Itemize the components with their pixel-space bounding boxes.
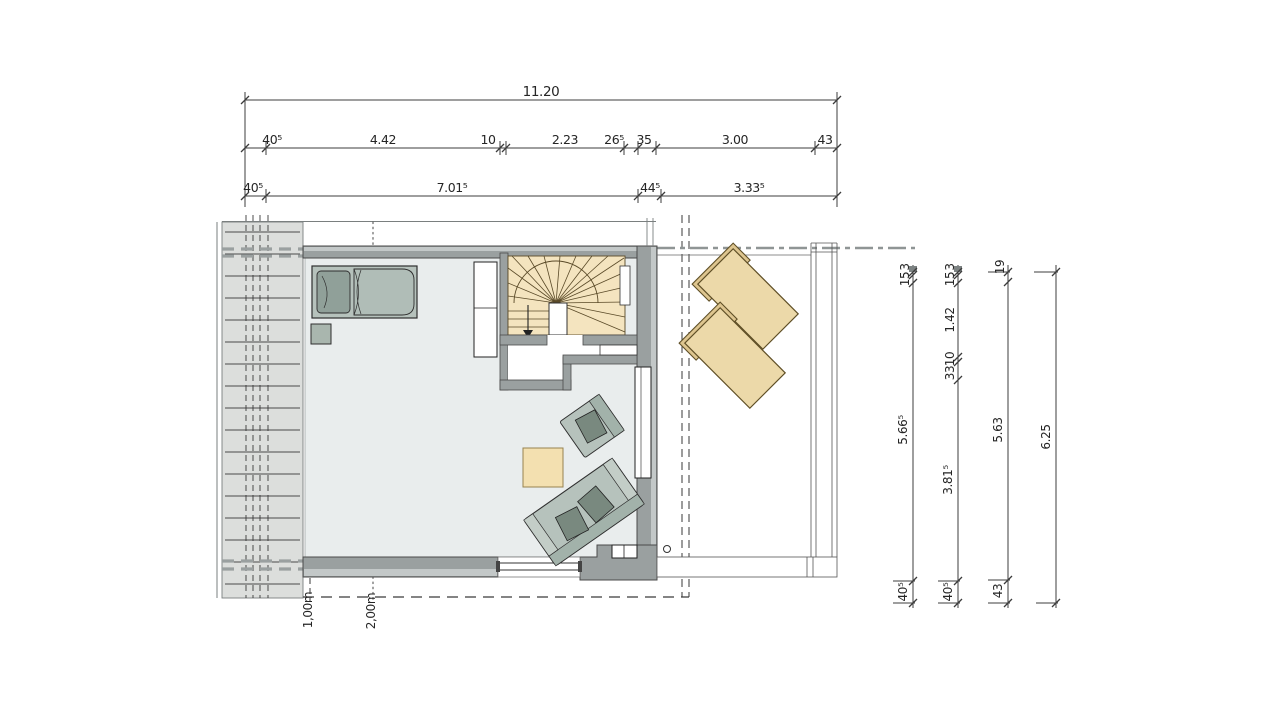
dim-label: 43 bbox=[817, 132, 832, 147]
dim-label: 40⁵ bbox=[941, 557, 955, 627]
floor-plan-canvas: 11.20 40⁵ 4.42 10 2.23 26⁵ 35 3.00 43 40… bbox=[0, 0, 1280, 720]
wall-niche-box bbox=[612, 545, 637, 558]
dim-label: 2.23 bbox=[552, 132, 578, 147]
dim-label: 6.25 bbox=[1039, 402, 1053, 472]
dim-label: 3.00 bbox=[722, 132, 748, 147]
dim-label: 7.01⁵ bbox=[437, 180, 468, 195]
door-handle-circle bbox=[664, 546, 671, 553]
sliding-door bbox=[496, 557, 582, 577]
dim-label: 3.33⁵ bbox=[734, 180, 765, 195]
wardrobe bbox=[474, 262, 497, 357]
roof-strip bbox=[217, 215, 303, 598]
patio-door bbox=[635, 367, 651, 478]
height-mark-label: 1,00m bbox=[301, 575, 315, 645]
dim-label: 4.42 bbox=[370, 132, 396, 147]
dim-label: 44⁵ bbox=[640, 180, 660, 195]
dim-label-total: 11.20 bbox=[523, 84, 560, 100]
dim-label: 40⁵ bbox=[243, 180, 263, 195]
bed bbox=[312, 266, 417, 318]
dim-label: 15 bbox=[898, 244, 912, 314]
dim-label: 3.81⁵ bbox=[941, 445, 955, 515]
plan-linework bbox=[0, 0, 1280, 720]
dim-label: 33 bbox=[943, 338, 957, 408]
nightstand bbox=[311, 324, 331, 344]
dim-label: 35 bbox=[636, 132, 651, 147]
dim-label: 5.63 bbox=[991, 395, 1005, 465]
dim-label: 40⁵ bbox=[896, 557, 910, 627]
dim-label: 5.66⁵ bbox=[896, 395, 910, 465]
dim-label: 10 bbox=[480, 132, 495, 147]
dim-label: 19 bbox=[993, 232, 1007, 302]
dimension-lines-right bbox=[893, 265, 1060, 608]
dim-label: 26⁵ bbox=[604, 132, 624, 147]
dim-label: 40⁵ bbox=[262, 132, 282, 147]
coffee-table bbox=[523, 448, 563, 487]
dim-label: 43 bbox=[991, 556, 1005, 626]
height-mark-label: 2,00m bbox=[364, 576, 378, 646]
